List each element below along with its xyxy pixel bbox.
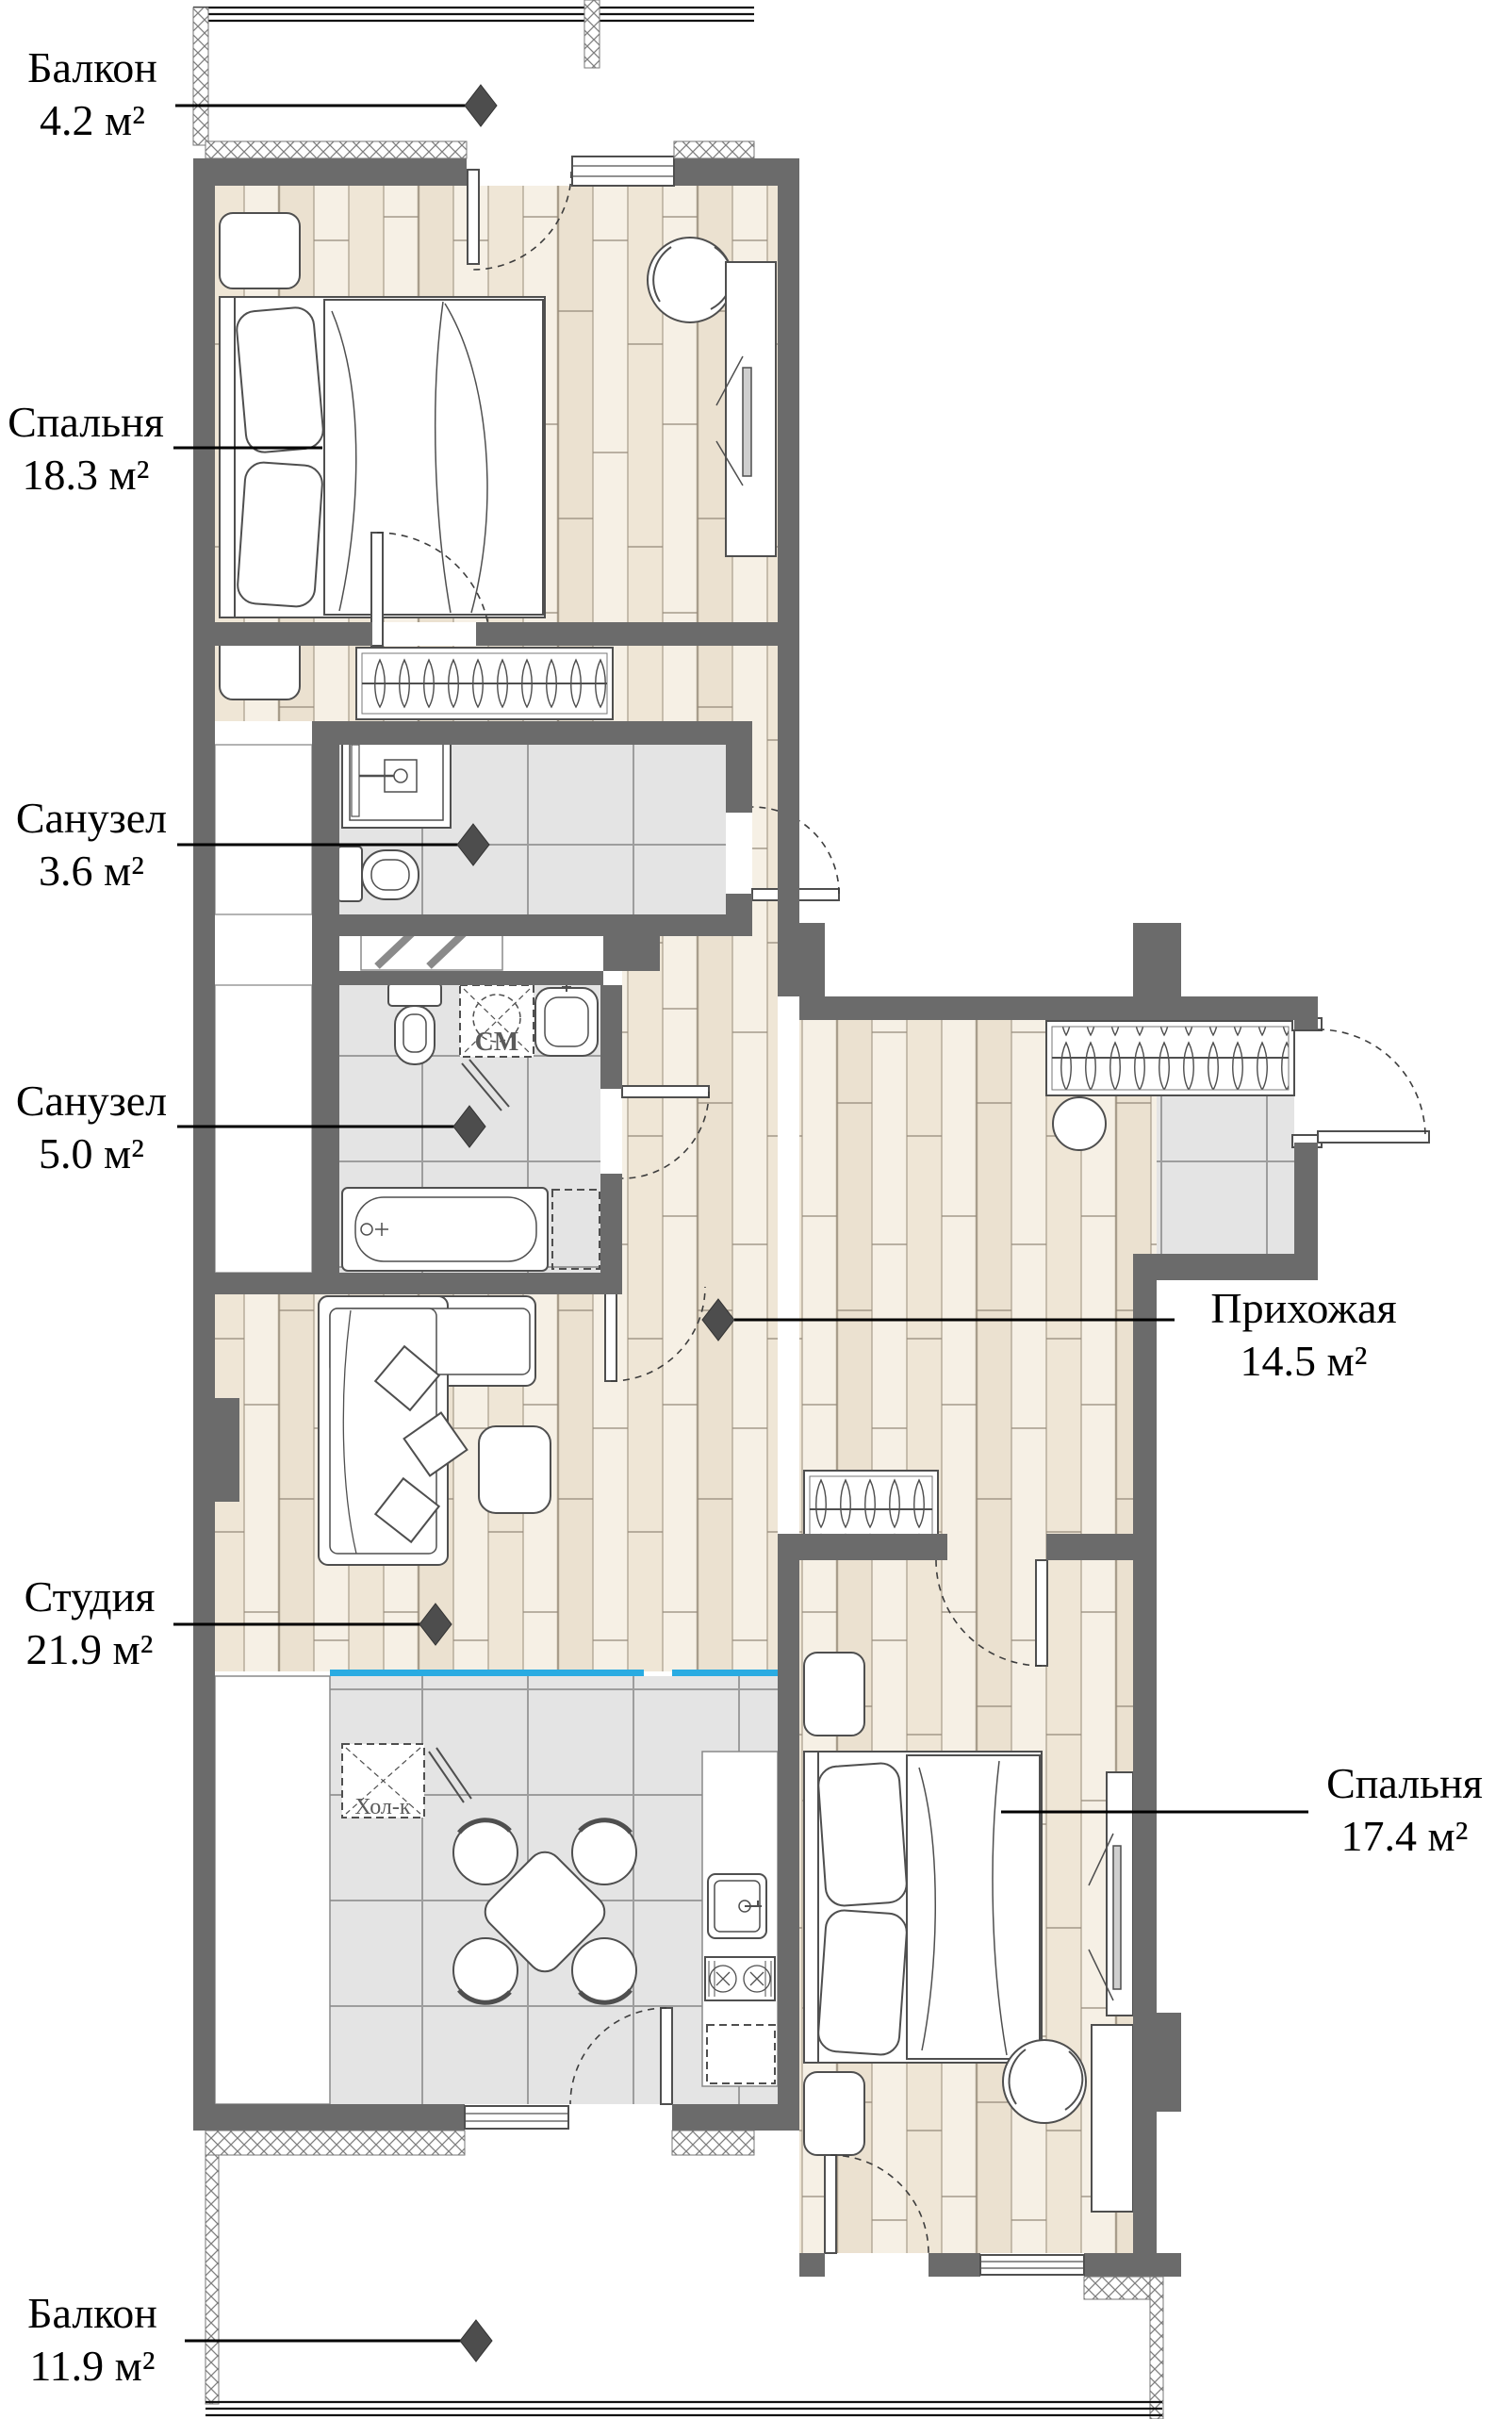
kitchen-sink xyxy=(708,1874,766,1938)
door-swing xyxy=(1318,1029,1425,1137)
room-label-balcony-top: Балкон 4.2 м² xyxy=(8,41,177,147)
fridge-label: Хол-к xyxy=(354,1795,410,1819)
hatched-wall xyxy=(1150,2277,1163,2419)
room-area: 17.4 м² xyxy=(1312,1810,1497,1863)
room-name: Балкон xyxy=(2,2287,183,2340)
room-area: 21.9 м² xyxy=(4,1623,175,1676)
room-area: 3.6 м² xyxy=(4,845,179,897)
room-area: 5.0 м² xyxy=(4,1127,179,1180)
nightstand xyxy=(804,1653,864,1736)
room-label-studio: Студия 21.9 м² xyxy=(4,1571,175,1676)
armchair xyxy=(1003,2040,1086,2123)
floor-plan-drawing: СМ Хол-к xyxy=(0,0,1512,2419)
room-area: 18.3 м² xyxy=(0,449,172,502)
sink xyxy=(535,982,598,1056)
kitchen-counter-accent xyxy=(330,1670,778,1676)
room-name: Студия xyxy=(4,1571,175,1623)
shower xyxy=(342,733,451,828)
tv xyxy=(1113,1846,1121,1989)
stove xyxy=(705,1957,775,2000)
area-marker-diamond xyxy=(465,85,497,126)
toilet xyxy=(388,983,441,1064)
room-label-bedroom-2: Спальня 17.4 м² xyxy=(1312,1757,1497,1863)
balcony-railing xyxy=(205,2402,1162,2415)
coffee-table xyxy=(479,1426,551,1513)
nightstand xyxy=(220,213,300,288)
hatched-wall xyxy=(205,2155,219,2404)
hatched-wall xyxy=(1084,2277,1150,2299)
dresser xyxy=(1092,2025,1133,2212)
hatched-wall xyxy=(584,0,600,68)
balcony-railing xyxy=(193,8,754,21)
wardrobe-hangers xyxy=(1046,1021,1294,1095)
room-name: Спальня xyxy=(0,396,172,449)
room-label-bathroom-2: Санузел 5.0 м² xyxy=(4,1075,179,1180)
window xyxy=(980,2255,1084,2275)
armchair xyxy=(648,238,732,322)
room-area: 11.9 м² xyxy=(2,2340,183,2393)
toilet xyxy=(337,847,419,901)
hatched-wall xyxy=(674,141,754,158)
room-label-bathroom-1: Санузел 3.6 м² xyxy=(4,792,179,897)
room-name: Прихожая xyxy=(1176,1282,1431,1335)
hatched-wall xyxy=(193,8,208,145)
room-area: 14.5 м² xyxy=(1176,1335,1431,1388)
room-area: 4.2 м² xyxy=(8,94,177,147)
tv-console xyxy=(716,262,776,556)
area-marker-diamond xyxy=(460,2320,492,2361)
room-name: Балкон xyxy=(8,41,177,94)
wardrobe-hangers xyxy=(356,648,613,719)
floor-plan-canvas: СМ Хол-к Балкон 4.2 м² Спальня 18.3 м² С… xyxy=(0,0,1512,2419)
washing-machine-label: СМ xyxy=(475,1028,519,1057)
utility-shafts xyxy=(215,745,312,1273)
bathtub xyxy=(342,1188,548,1271)
room-name: Санузел xyxy=(4,792,179,845)
room-label-bedroom-1: Спальня 18.3 м² xyxy=(0,396,172,502)
room-label-hallway: Прихожая 14.5 м² xyxy=(1176,1282,1431,1388)
hatched-wall xyxy=(672,2131,754,2155)
room-label-balcony-bottom: Балкон 11.9 м² xyxy=(2,2287,183,2393)
double-bed xyxy=(804,1752,1042,2063)
room-name: Санузел xyxy=(4,1075,179,1127)
window xyxy=(465,2106,568,2129)
tv xyxy=(743,368,751,476)
entry-door xyxy=(1292,1018,1429,1147)
stool xyxy=(1053,1097,1106,1150)
nightstand xyxy=(804,2072,864,2155)
hatched-wall xyxy=(205,2131,465,2155)
room-name: Спальня xyxy=(1312,1757,1497,1810)
hatched-wall xyxy=(205,141,467,158)
kitchen-counter-left xyxy=(215,1676,330,2104)
window xyxy=(572,156,674,186)
